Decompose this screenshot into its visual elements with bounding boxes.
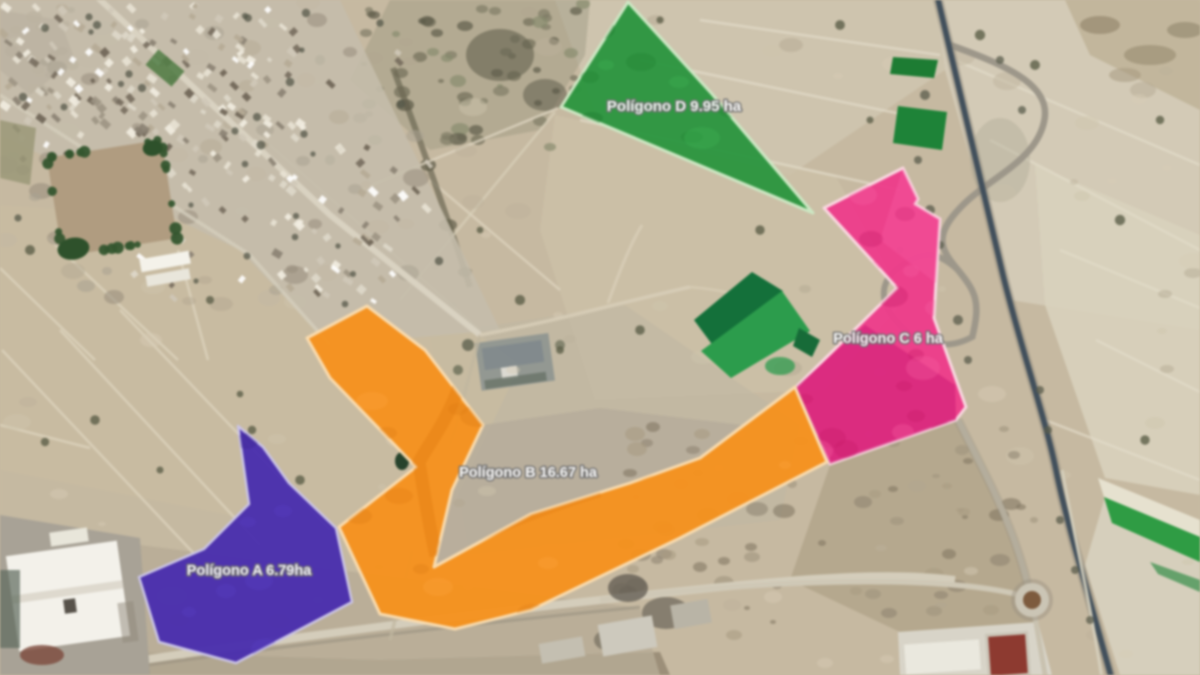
svg-text:Polígono B 16.67 ha: Polígono B 16.67 ha [459,465,598,481]
svg-text:Polígono C 6 ha: Polígono C 6 ha [833,331,943,347]
svg-text:Polígono D 9.95 ha: Polígono D 9.95 ha [607,98,742,115]
svg-text:Polígono A 6.79ha: Polígono A 6.79ha [187,563,313,579]
